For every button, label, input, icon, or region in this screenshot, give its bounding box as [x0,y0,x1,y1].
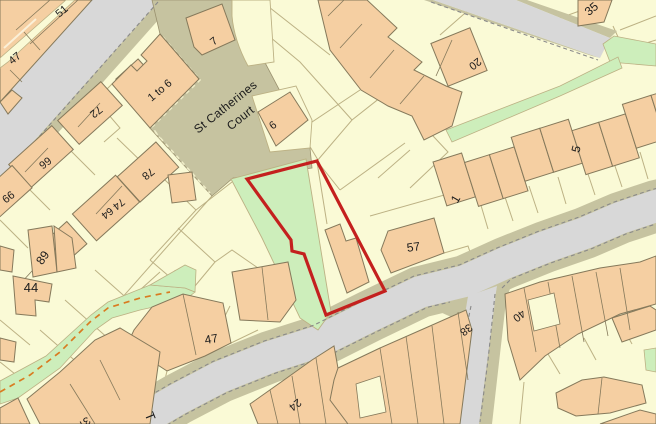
svg-text:44: 44 [24,280,38,295]
svg-text:57: 57 [406,239,421,255]
svg-text:47: 47 [204,331,220,347]
